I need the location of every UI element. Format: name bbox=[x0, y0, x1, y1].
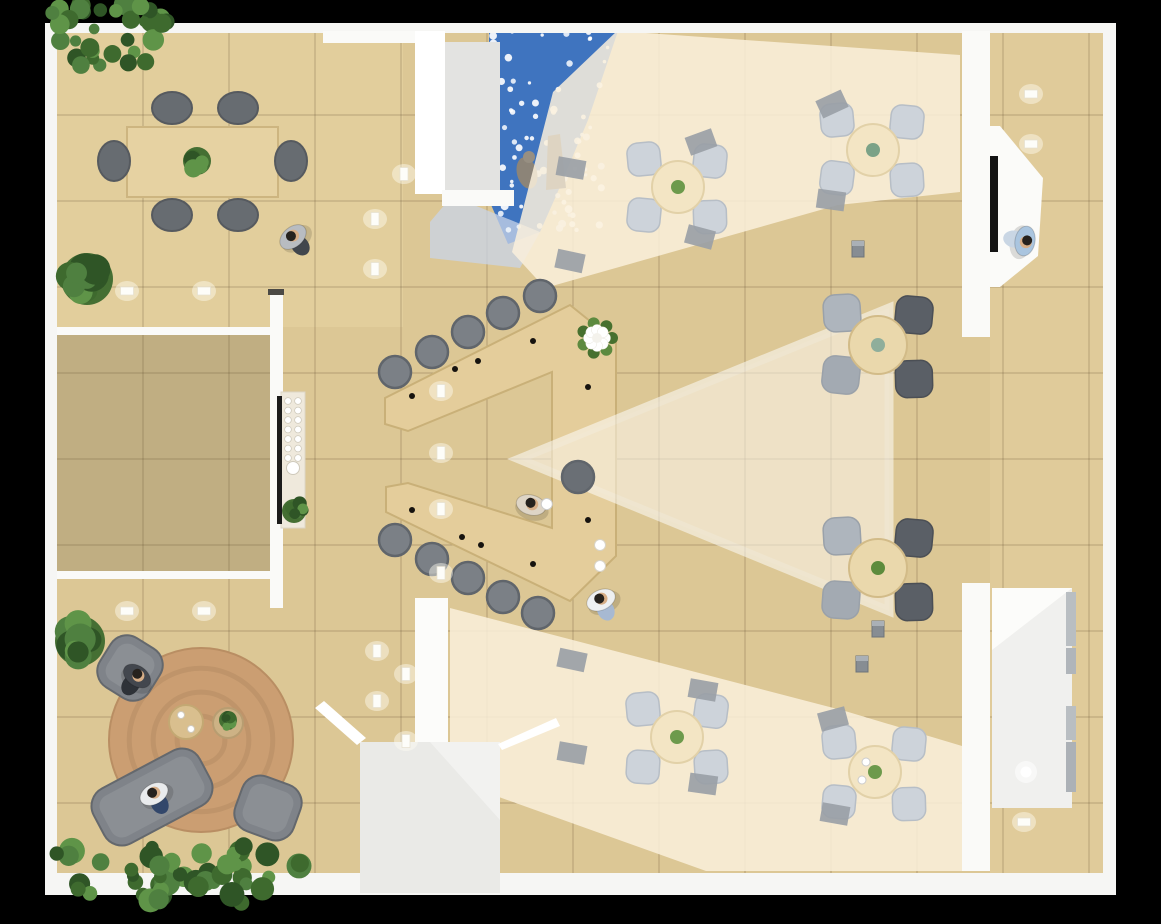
bar-lamp-dot bbox=[585, 517, 591, 523]
dining-chair bbox=[152, 199, 192, 231]
wall-frame-left bbox=[45, 23, 57, 895]
floor-private-room-dark bbox=[57, 334, 270, 572]
floor-lamp bbox=[429, 499, 453, 519]
bar-stool bbox=[379, 524, 411, 556]
statue-figure-top bbox=[523, 151, 535, 163]
wall-light bbox=[1019, 84, 1043, 104]
architectural-render bbox=[0, 0, 1161, 924]
bar-stool bbox=[416, 336, 448, 368]
wall-light bbox=[394, 664, 418, 684]
ceiling-light bbox=[115, 601, 139, 621]
waste-bin bbox=[856, 656, 868, 672]
floor-mat bbox=[816, 189, 846, 212]
dining-chair bbox=[98, 141, 130, 181]
bar-lamp-dot bbox=[530, 338, 536, 344]
bar-lamp-dot bbox=[530, 561, 536, 567]
bar-stool bbox=[452, 562, 484, 594]
dining-chair bbox=[275, 141, 307, 181]
floor-lamp bbox=[429, 443, 453, 463]
bar-plate bbox=[595, 561, 606, 572]
counter-appliance bbox=[1066, 706, 1076, 740]
wall-right-bottom bbox=[962, 583, 990, 871]
bar-stool bbox=[487, 297, 519, 329]
dining-chair bbox=[152, 92, 192, 124]
bar-stool bbox=[562, 461, 594, 493]
wall-light bbox=[394, 731, 418, 751]
wall-light bbox=[1019, 134, 1043, 154]
counter-appliance bbox=[1066, 592, 1076, 646]
bar-stool bbox=[452, 316, 484, 348]
dining-chair bbox=[218, 92, 258, 124]
waste-bin bbox=[852, 241, 864, 257]
floor-lamp bbox=[429, 563, 453, 583]
bar-lamp-dot bbox=[478, 542, 484, 548]
wall-entry-glass bbox=[445, 42, 500, 196]
floor-lamp bbox=[429, 381, 453, 401]
bar-lamp-dot bbox=[475, 358, 481, 364]
coffee-cup bbox=[178, 712, 185, 719]
wall-light bbox=[363, 209, 387, 229]
wall-frame-right bbox=[1103, 23, 1116, 895]
bar-stool bbox=[522, 597, 554, 629]
wall-light bbox=[1012, 812, 1036, 832]
ceiling-light bbox=[115, 281, 139, 301]
wall-light bbox=[365, 691, 389, 711]
bar-lamp-dot bbox=[409, 507, 415, 513]
wall-entry-slab bbox=[415, 31, 445, 194]
bar-plate bbox=[595, 540, 606, 551]
bar-lamp-dot bbox=[459, 534, 465, 540]
bar-stool bbox=[524, 280, 556, 312]
bar-stool bbox=[487, 581, 519, 613]
bar-lamp-dot bbox=[585, 384, 591, 390]
coffee-cup bbox=[188, 726, 195, 733]
floor-mat bbox=[688, 773, 718, 796]
wall-room-bottom bbox=[57, 571, 270, 579]
wall-right-top bbox=[962, 31, 990, 337]
bar-lamp-dot bbox=[409, 393, 415, 399]
wall-room-vertical-cap bbox=[268, 289, 284, 295]
counter-downlight bbox=[1015, 761, 1037, 783]
waste-bin bbox=[872, 621, 884, 637]
floor-plan-svg bbox=[0, 0, 1161, 924]
ceiling-light bbox=[192, 281, 216, 301]
reception-screen bbox=[990, 156, 998, 252]
wall-room-top bbox=[57, 327, 270, 335]
bar-stool bbox=[379, 356, 411, 388]
wall-frame-top bbox=[45, 23, 1115, 33]
bar-lamp-dot bbox=[452, 366, 458, 372]
wall-light bbox=[392, 164, 416, 184]
wall-light bbox=[363, 259, 387, 279]
coffee-table-wood bbox=[169, 705, 203, 739]
buffet-large-plate bbox=[287, 462, 300, 475]
wall-light bbox=[365, 641, 389, 661]
dining-chair bbox=[218, 199, 258, 231]
wall-entry-bottom bbox=[442, 190, 514, 206]
counter-appliance bbox=[1066, 648, 1076, 674]
buffet-screen bbox=[277, 396, 282, 524]
ceiling-light bbox=[192, 601, 216, 621]
counter-appliance bbox=[1066, 742, 1076, 792]
